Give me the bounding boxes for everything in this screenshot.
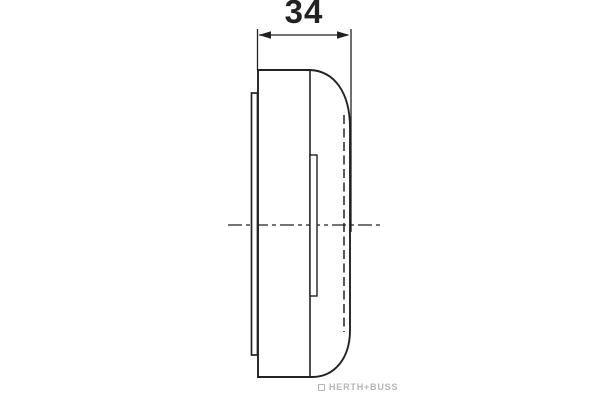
dimension-width-label: 34 — [285, 0, 324, 28]
part-side-view-drawing — [0, 0, 600, 400]
body-outline — [258, 70, 350, 377]
mounting-post — [310, 155, 317, 296]
technical-drawing-canvas: 34 HERTH+BUSS — [0, 0, 600, 400]
dimension-arrow-right-icon — [337, 31, 350, 38]
dimension-arrow-left-icon — [259, 31, 272, 38]
watermark-brand-text: HERTH+BUSS — [329, 383, 398, 392]
herth-buss-logo-icon — [318, 384, 325, 391]
watermark: HERTH+BUSS — [318, 383, 398, 392]
back-flange — [252, 93, 258, 355]
